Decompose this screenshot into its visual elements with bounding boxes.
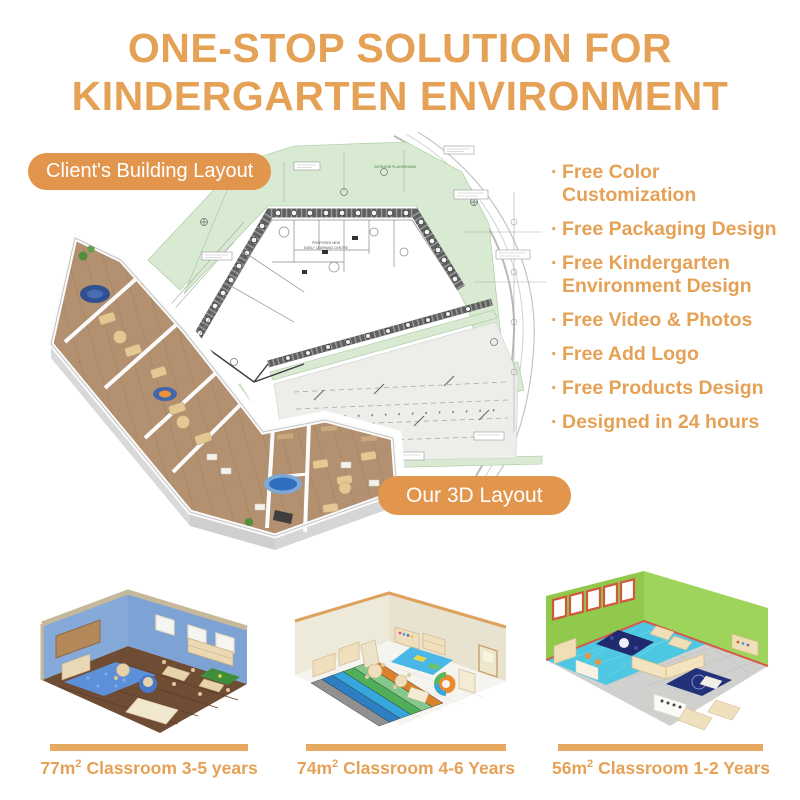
classroom-caption-3: 56m2Classroom 1-2 Years (550, 752, 772, 780)
plan-note-text: OUTDOOR PLAYGROUND (374, 165, 417, 169)
bullet-icon: · (551, 377, 558, 400)
page-title-line1: ONE-STOP SOLUTION FOR (0, 24, 800, 72)
feature-item: ·Free Products Design (551, 377, 796, 400)
bullet-icon: · (551, 411, 558, 434)
page-title-line2: KINDERGARTEN ENVIRONMENT (0, 72, 800, 120)
bullet-icon: · (551, 343, 558, 366)
classroom-caption-2: 74m2Classroom 4-6 Years (296, 752, 516, 780)
feature-list: ·Free Color Customization ·Free Packagin… (551, 161, 796, 445)
divider-bar (306, 744, 506, 751)
classroom-caption-1: 77m2Classroom 3-5 years (40, 752, 258, 780)
client-building-layout-badge: Client's Building Layout (28, 153, 271, 190)
feature-item: ·Free Add Logo (551, 343, 796, 366)
classroom-render-1 (28, 578, 263, 743)
classroom-render-3 (536, 568, 786, 743)
feature-item: ·Free Video & Photos (551, 309, 796, 332)
bullet-icon: · (551, 309, 558, 332)
our-3d-layout-label: Our 3D Layout (406, 484, 543, 508)
classroom-render-2 (283, 583, 518, 743)
feature-item: ·Free Kindergarten Environment Design (551, 252, 796, 298)
rainbow-ring (437, 675, 456, 694)
divider-bar (50, 744, 248, 751)
bullet-icon: · (551, 252, 558, 275)
feature-item: ·Free Color Customization (551, 161, 796, 207)
page-title: ONE-STOP SOLUTION FOR KINDERGARTEN ENVIR… (0, 24, 800, 120)
bullet-icon: · (551, 218, 558, 241)
bullet-icon: · (551, 161, 558, 184)
plant (79, 252, 88, 261)
our-3d-layout-badge: Our 3D Layout (378, 476, 571, 515)
divider-bar (558, 744, 763, 751)
client-building-layout-label: Client's Building Layout (46, 160, 253, 183)
3d-building-layout-image (25, 222, 405, 567)
feature-item: ·Designed in 24 hours (551, 411, 796, 434)
feature-item: ·Free Packaging Design (551, 218, 796, 241)
